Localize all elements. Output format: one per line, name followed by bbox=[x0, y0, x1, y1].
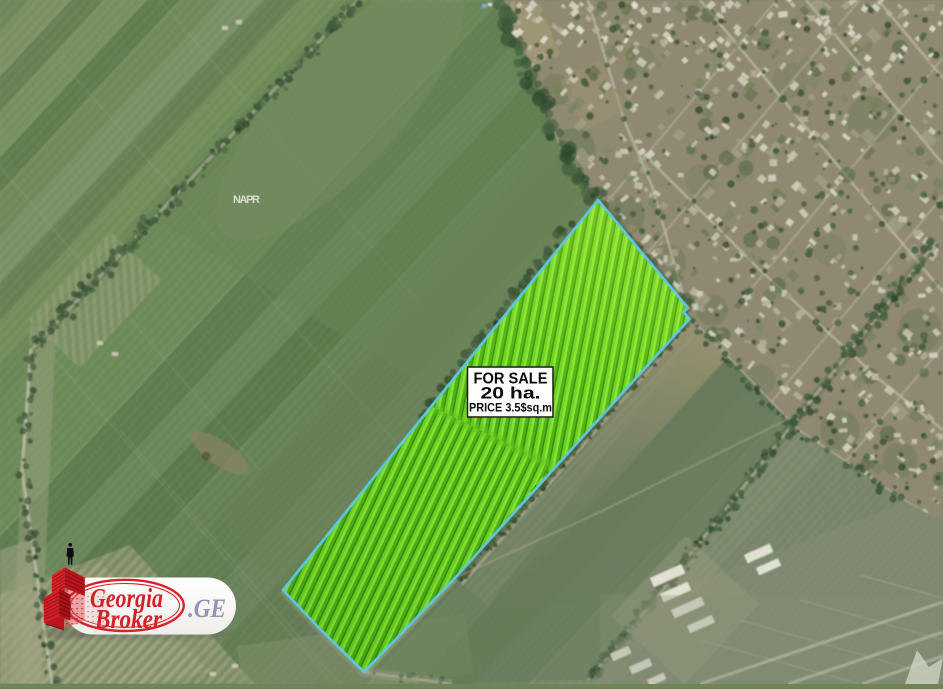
svg-text:PRICE 3.5$sq.m: PRICE 3.5$sq.m bbox=[469, 401, 552, 415]
svg-text:.GE: .GE bbox=[188, 594, 226, 623]
svg-text:NAPR: NAPR bbox=[233, 194, 260, 206]
svg-text:Broker: Broker bbox=[94, 604, 162, 634]
